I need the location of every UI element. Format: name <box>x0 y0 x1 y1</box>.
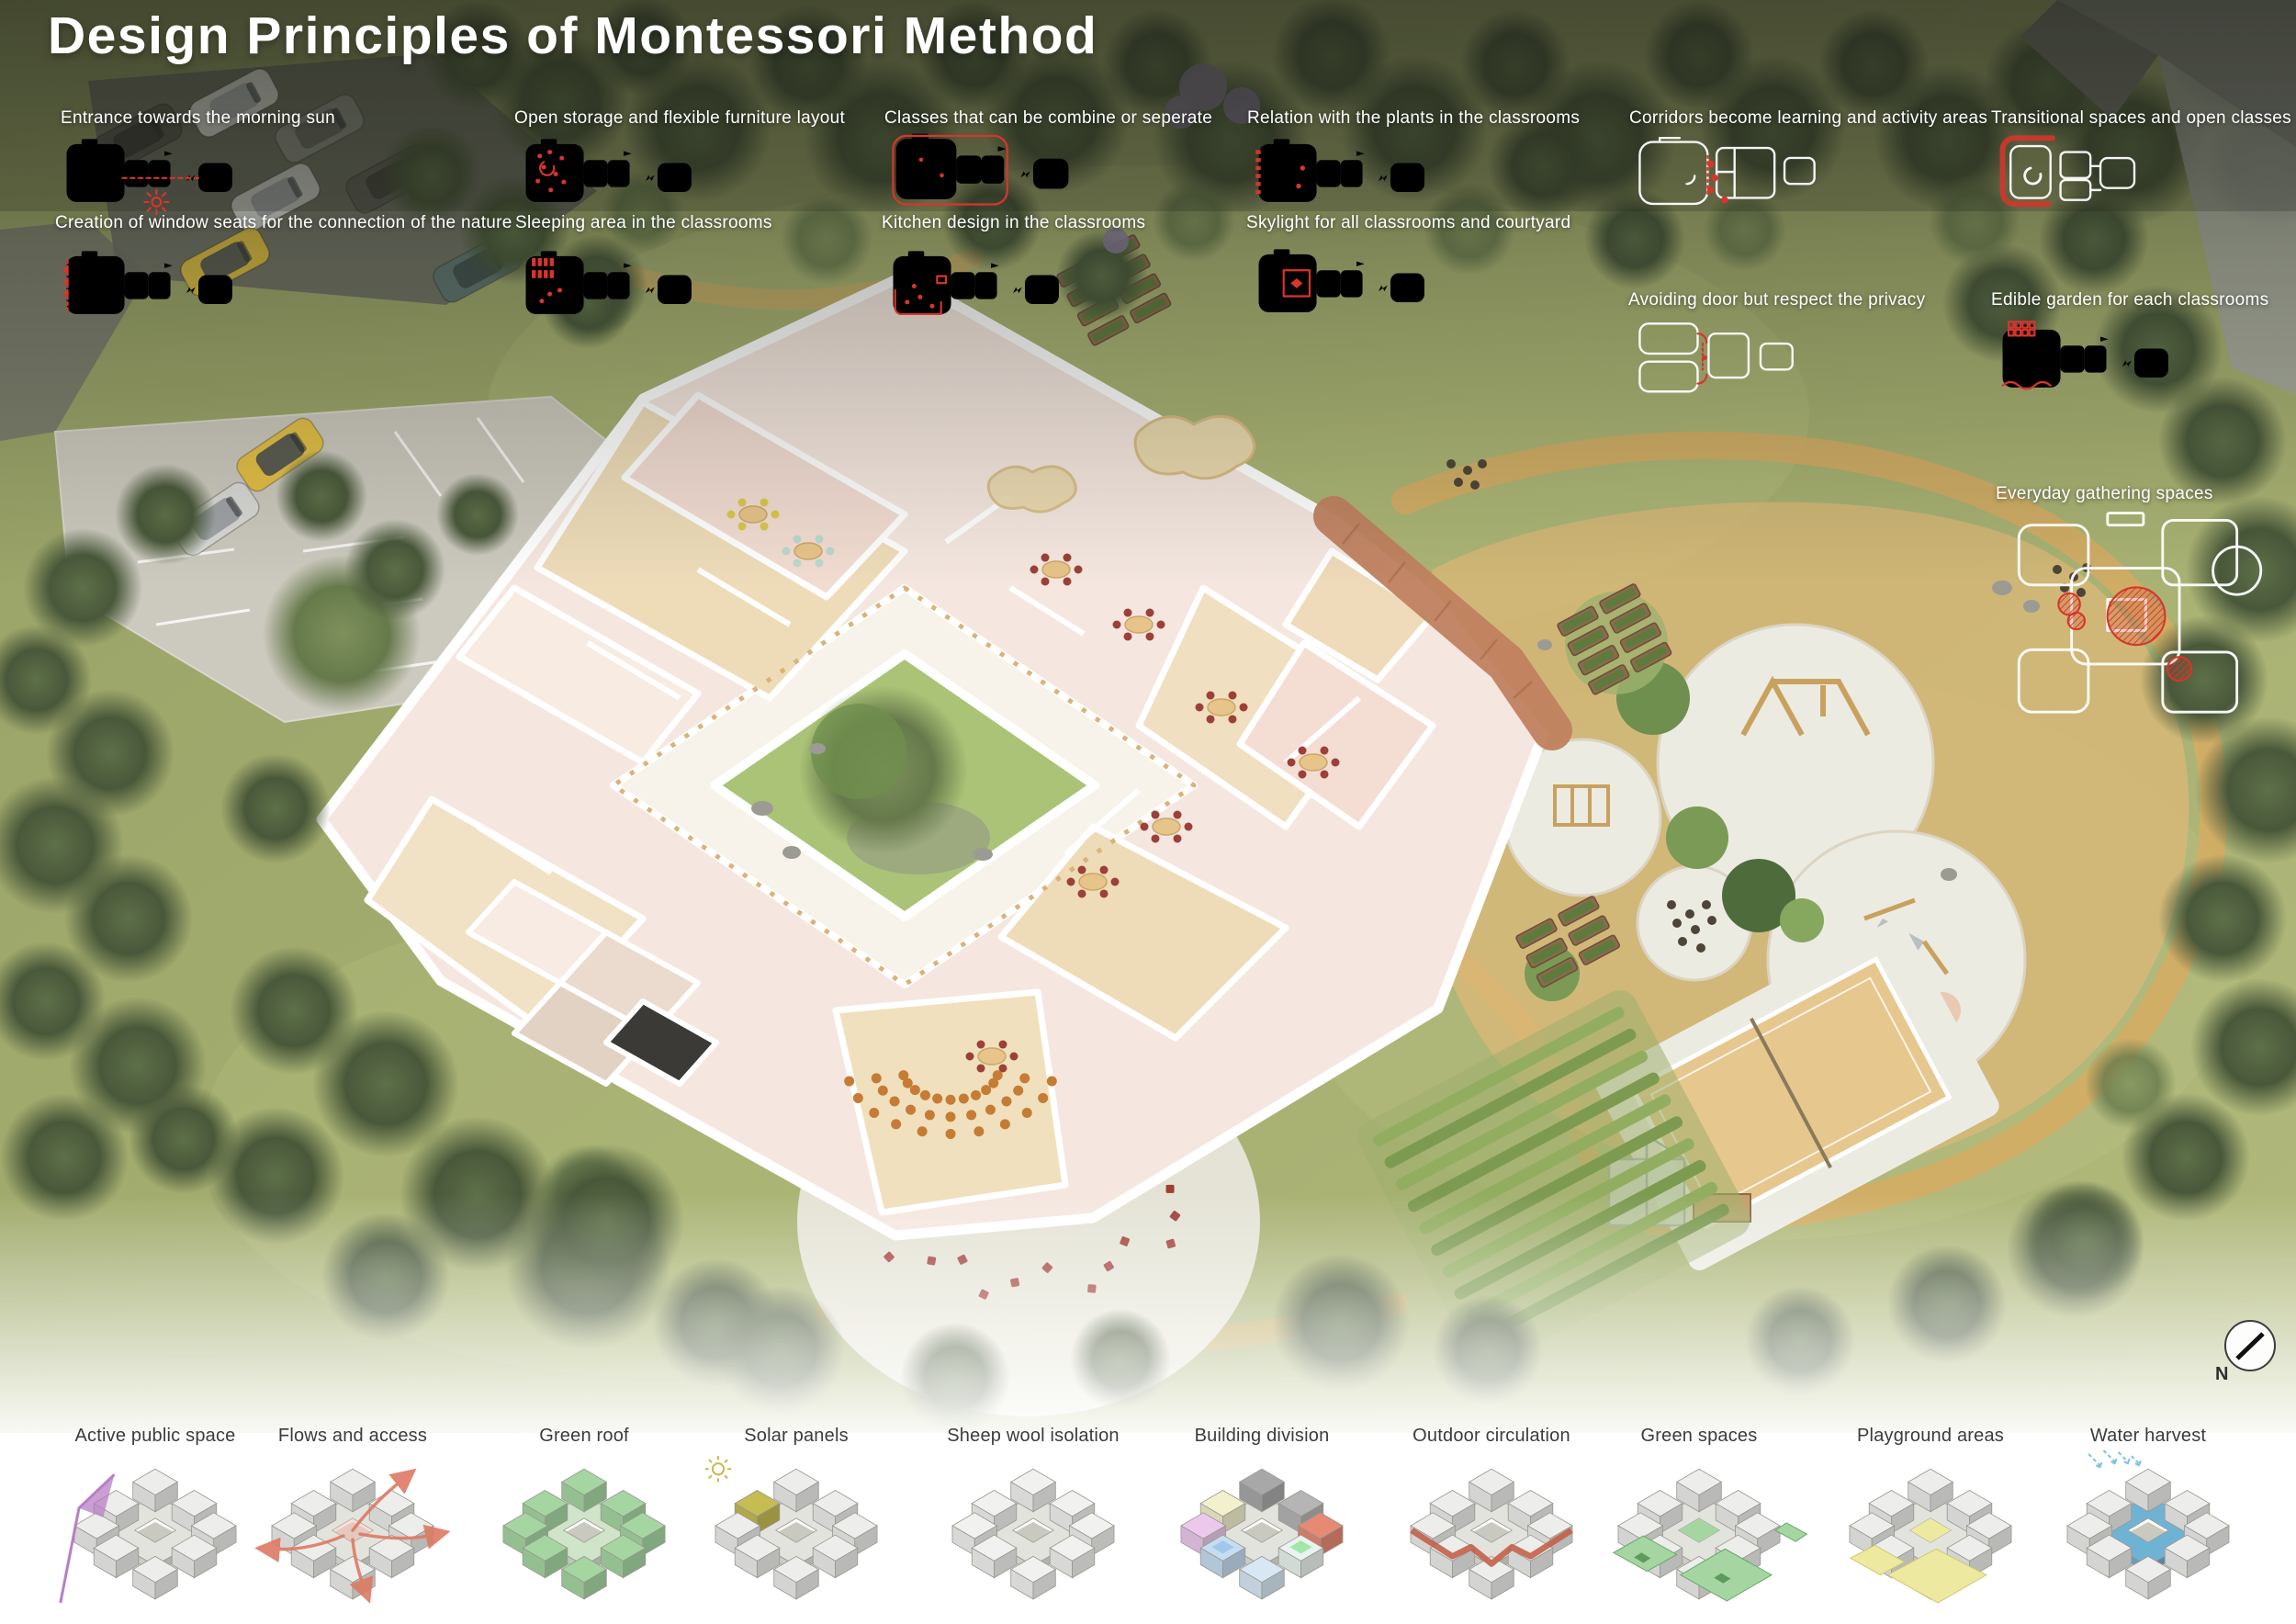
plan-diagram-transitional <box>1997 134 2226 214</box>
principle-label-skylight: Skylight for all classrooms and courtyar… <box>1246 213 1570 233</box>
principle-label-entrance: Entrance towards the morning sun <box>61 108 335 129</box>
strategy-diagram-circulation <box>1385 1450 1598 1607</box>
strategy-diagram-green-spaces <box>1593 1450 1806 1607</box>
north-compass: N <box>2197 1304 2296 1405</box>
strategy-strip: Active public space Flows and access Gre… <box>0 1405 2296 1624</box>
principle-label-gathering: Everyday gathering spaces <box>1996 484 2213 504</box>
strategy-diagram-playground <box>1824 1450 2037 1607</box>
poster-title: Design Principles of Montessori Method <box>48 6 1097 66</box>
strategy-diagram-green-roof <box>478 1450 691 1607</box>
strategy-playground-areas: Playground areas <box>1811 1426 2050 1611</box>
principle-label-avoiding-door: Avoiding door but respect the privacy <box>1628 290 1925 310</box>
principle-label-open-storage: Open storage and flexible furniture layo… <box>514 108 845 129</box>
plan-diagram-open-storage <box>520 134 749 214</box>
compass-n-label: N <box>2215 1364 2228 1384</box>
principle-label-kitchen: Kitchen design in the classrooms <box>882 213 1145 233</box>
strategy-diagram-wool <box>927 1450 1140 1607</box>
sun-icon <box>144 190 168 214</box>
plan-diagram-edible-garden <box>1997 320 2226 400</box>
principle-label-combine: Classes that can be combine or seperate <box>884 108 1212 129</box>
strategy-green-roof: Green roof <box>465 1426 703 1611</box>
strategy-diagram-flows <box>246 1450 459 1607</box>
plan-diagram-sleeping <box>520 246 749 326</box>
poster: Design Principles of Montessori Method E… <box>0 0 2296 1624</box>
principle-label-transitional: Transitional spaces and open classes <box>1991 108 2291 129</box>
principle-label-sleeping: Sleeping area in the classrooms <box>515 213 772 233</box>
strategy-diagram-active-public-space <box>49 1450 262 1607</box>
plan-diagram-entrance <box>61 134 290 214</box>
principle-label-corridors: Corridors become learning and activity a… <box>1629 108 1987 129</box>
strategy-building-division: Building division <box>1142 1426 1381 1611</box>
strategy-outdoor-circulation: Outdoor circulation <box>1372 1426 1611 1611</box>
plan-diagram-corridors <box>1635 136 1864 216</box>
plan-diagram-avoiding-door <box>1635 320 1864 400</box>
strategy-green-spaces: Green spaces <box>1580 1426 1818 1611</box>
plan-diagram-gathering <box>2002 511 2278 727</box>
strategy-diagram-water <box>2042 1450 2255 1607</box>
rain-arrows-icon <box>2088 1450 2141 1467</box>
plan-diagram-plants <box>1253 134 1482 214</box>
principle-label-edible-garden: Edible garden for each classrooms <box>1991 290 2268 310</box>
strategy-flows-access: Flows and access <box>233 1426 472 1611</box>
plan-diagram-kitchen <box>887 246 1117 326</box>
strategy-diagram-division <box>1155 1450 1368 1607</box>
plan-diagram-skylight <box>1253 244 1482 324</box>
sun-icon <box>705 1456 731 1482</box>
strategy-water-harvest: Water harvest <box>2029 1426 2268 1611</box>
principle-label-plants: Relation with the plants in the classroo… <box>1247 108 1580 129</box>
plan-diagram-combine <box>890 129 1129 211</box>
strategy-diagram-solar <box>690 1450 903 1607</box>
plan-diagram-window-seats <box>61 246 290 326</box>
site-plan-render <box>0 0 2296 1624</box>
strategy-sheep-wool: Sheep wool isolation <box>914 1426 1153 1611</box>
strategy-solar-panels: Solar panels <box>677 1426 916 1611</box>
principle-label-window-seats: Creation of window seats for the connect… <box>55 213 512 233</box>
